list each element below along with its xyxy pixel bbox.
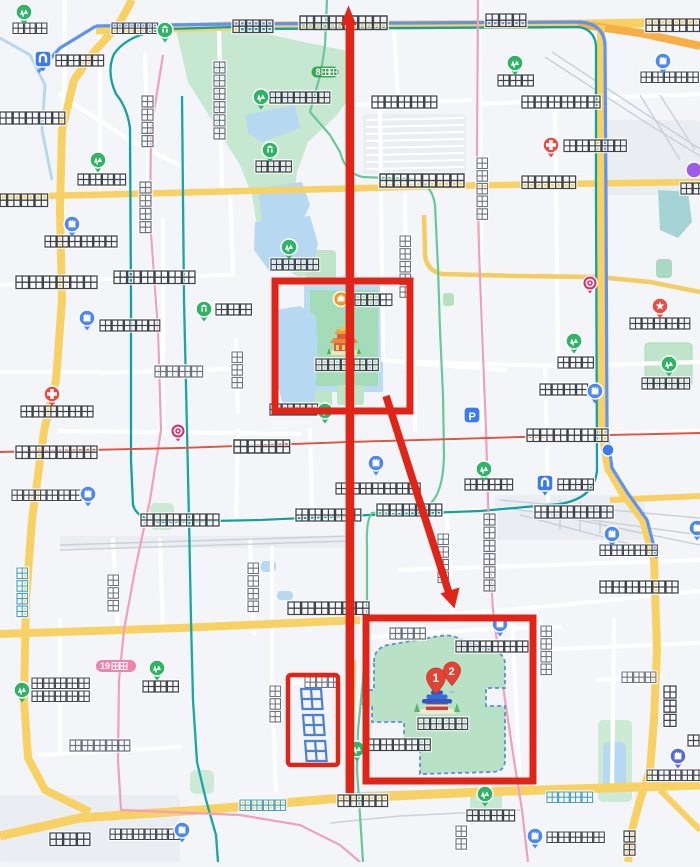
svg-text:8: 8	[316, 67, 321, 77]
svg-text:1: 1	[433, 671, 440, 685]
svg-text:19: 19	[100, 661, 110, 671]
svg-text:2: 2	[449, 666, 455, 678]
svg-text:P: P	[469, 411, 476, 423]
